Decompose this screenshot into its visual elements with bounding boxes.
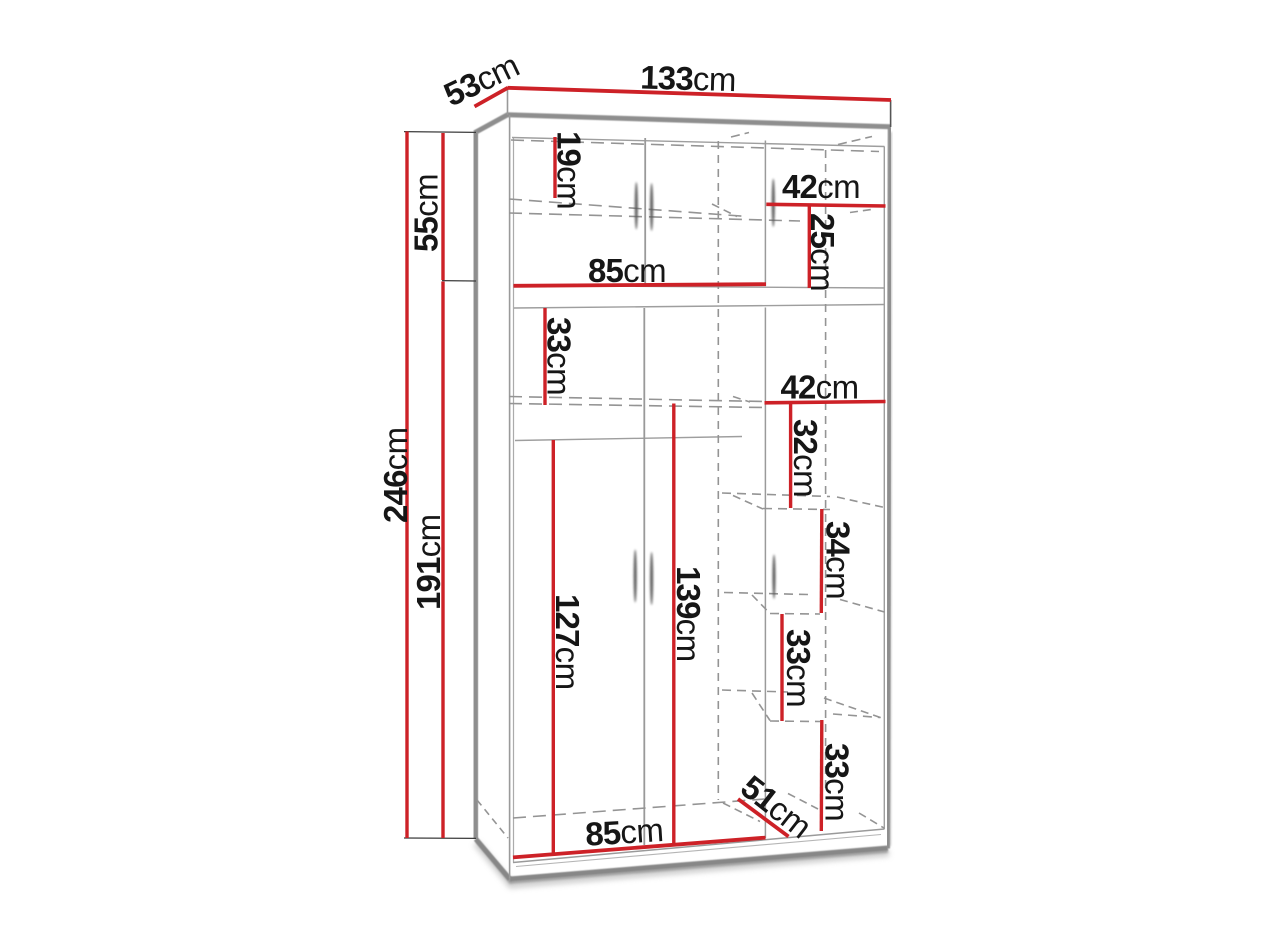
svg-text:42cm: 42cm <box>781 369 859 406</box>
svg-text:85cm: 85cm <box>588 252 666 289</box>
svg-text:32cm: 32cm <box>787 419 824 497</box>
svg-text:19cm: 19cm <box>551 131 588 209</box>
svg-text:139cm: 139cm <box>670 566 707 662</box>
svg-text:33cm: 33cm <box>541 317 578 395</box>
svg-text:55cm: 55cm <box>408 174 445 252</box>
svg-text:34cm: 34cm <box>820 521 857 599</box>
svg-text:42cm: 42cm <box>782 168 860 205</box>
svg-text:191cm: 191cm <box>410 514 447 610</box>
svg-text:33cm: 33cm <box>819 743 856 821</box>
svg-text:33cm: 33cm <box>780 629 817 707</box>
svg-text:51cm: 51cm <box>734 768 818 845</box>
svg-text:127cm: 127cm <box>549 594 586 690</box>
svg-text:25cm: 25cm <box>804 213 841 291</box>
svg-text:85cm: 85cm <box>584 811 664 853</box>
svg-text:246cm: 246cm <box>377 427 414 523</box>
svg-text:133cm: 133cm <box>640 59 737 99</box>
